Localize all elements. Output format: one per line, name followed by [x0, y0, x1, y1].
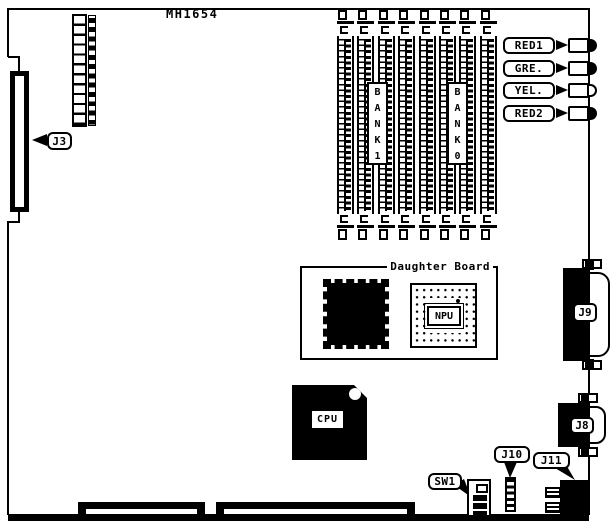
simm-slot — [398, 10, 415, 240]
simm-clip-bottom — [422, 215, 430, 223]
led-yellow — [568, 83, 589, 98]
pin1-dot — [456, 299, 460, 303]
sw1-position-on — [473, 495, 487, 501]
qfp-chip — [323, 279, 389, 349]
simm-bar-top — [337, 21, 354, 24]
simm-pin-ladder — [337, 36, 354, 214]
simm-tab-top — [358, 10, 367, 20]
led-yellow-label: YEL. — [503, 82, 555, 99]
j8-mount-post-bottom — [581, 446, 589, 455]
simm-pin-ladder — [398, 36, 415, 214]
j9-label: J9 — [573, 303, 597, 322]
simm-contacts-right — [346, 39, 351, 211]
simm-bar-top — [357, 21, 374, 24]
cpu-pin1-dot — [349, 388, 361, 400]
simm-tab-bottom — [399, 229, 408, 240]
bank1-label: B A N K 1 — [367, 82, 388, 165]
led-yellow-arrow — [556, 85, 568, 95]
simm-tab-top — [460, 10, 469, 20]
simm-contacts-right — [407, 39, 412, 211]
simm-clip-top — [462, 26, 470, 34]
simm-clip-bottom — [340, 215, 348, 223]
simm-clip-top — [401, 26, 409, 34]
j11-callout: J11 — [533, 452, 570, 469]
cpu-chip: CPU — [292, 385, 367, 460]
j3-callout: J3 — [47, 132, 72, 150]
simm-tab-bottom — [358, 229, 367, 240]
led-row: GRE. — [503, 60, 603, 77]
sw1-dip-switch — [467, 479, 491, 517]
simm-bar-top — [480, 21, 497, 24]
led-red2-cap — [588, 107, 597, 120]
led-green-arrow — [556, 63, 568, 73]
simm-bar-bottom — [480, 225, 497, 228]
pin-header-pins — [88, 15, 96, 126]
simm-bar-bottom — [337, 225, 354, 228]
j3-callout-arrow — [32, 134, 47, 146]
npu-label: NPU — [427, 306, 461, 326]
simm-slot — [480, 10, 497, 240]
j9-mount-post-top — [585, 260, 594, 270]
edge-connector-stripe — [224, 509, 407, 514]
led-yellow-cap — [588, 84, 597, 97]
simm-contacts-left — [400, 39, 407, 211]
part-number-label: MH1654 — [166, 7, 218, 21]
simm-contacts-right — [489, 39, 494, 211]
daughter-board: Daughter Board NPU — [300, 266, 498, 360]
led-green — [568, 61, 589, 76]
led-red1 — [568, 38, 589, 53]
simm-slot — [337, 10, 354, 240]
edge-connector-left — [78, 502, 205, 521]
j11-jack — [545, 502, 561, 513]
simm-tab-bottom — [379, 229, 388, 240]
simm-bar-bottom — [398, 225, 415, 228]
simm-clip-bottom — [360, 215, 368, 223]
simm-bar-top — [419, 21, 436, 24]
simm-tab-top — [338, 10, 347, 20]
edge-connector-right — [216, 502, 415, 521]
led-row: RED1 — [503, 37, 603, 54]
led-green-cap — [588, 62, 597, 75]
simm-pin-ladder — [480, 36, 497, 214]
simm-slot — [419, 10, 436, 240]
sw1-callout: SW1 — [428, 473, 462, 490]
motherboard-diagram: MH1654 J3 — [0, 0, 612, 527]
simm-bar-top — [439, 21, 456, 24]
simm-tab-top — [440, 10, 449, 20]
cpu-label: CPU — [312, 411, 343, 428]
simm-pin-ladder — [419, 36, 436, 214]
led-red1-label: RED1 — [503, 37, 555, 54]
led-row: RED2 — [503, 105, 603, 122]
j11-jack — [545, 487, 561, 498]
led-row: YEL. — [503, 82, 603, 99]
simm-bar-top — [398, 21, 415, 24]
simm-rack — [337, 10, 498, 240]
simm-contacts-left — [359, 39, 366, 211]
led-red2-arrow — [556, 108, 568, 118]
simm-clip-top — [340, 26, 348, 34]
simm-tab-bottom — [481, 229, 490, 240]
simm-tab-bottom — [338, 229, 347, 240]
simm-clip-top — [360, 26, 368, 34]
simm-tab-top — [399, 10, 408, 20]
simm-bar-bottom — [419, 225, 436, 228]
led-red1-arrow — [556, 40, 568, 50]
simm-clip-bottom — [381, 215, 389, 223]
simm-contacts-left — [339, 39, 346, 211]
j3-connector — [10, 71, 29, 212]
j10-callout-arrow — [504, 462, 517, 478]
j10-callout: J10 — [494, 446, 530, 463]
simm-clip-top — [442, 26, 450, 34]
j8-label: J8 — [570, 417, 594, 434]
simm-clip-bottom — [401, 215, 409, 223]
pin-header-sockets — [72, 14, 87, 127]
simm-contacts-left — [421, 39, 428, 211]
simm-bar-bottom — [459, 225, 476, 228]
simm-contacts-right — [468, 39, 473, 211]
bank0-label: B A N K 0 — [447, 82, 468, 165]
j9-mount-post-bottom — [585, 359, 594, 369]
simm-tab-bottom — [420, 229, 429, 240]
simm-tab-top — [481, 10, 490, 20]
simm-clip-top — [483, 26, 491, 34]
simm-clip-bottom — [483, 215, 491, 223]
simm-tab-top — [420, 10, 429, 20]
simm-clip-top — [381, 26, 389, 34]
simm-bar-top — [459, 21, 476, 24]
simm-clip-bottom — [462, 215, 470, 223]
j8-mount-post-top — [581, 394, 589, 403]
simm-tab-bottom — [440, 229, 449, 240]
sw1-position-off — [476, 484, 488, 493]
led-red1-cap — [588, 39, 597, 52]
sw1-position-on — [473, 511, 487, 517]
npu-socket: NPU — [410, 283, 477, 348]
simm-bar-bottom — [357, 225, 374, 228]
simm-tab-bottom — [460, 229, 469, 240]
simm-clip-bottom — [442, 215, 450, 223]
simm-contacts-left — [482, 39, 489, 211]
led-red2 — [568, 106, 589, 121]
led-green-label: GRE. — [503, 60, 555, 77]
edge-connector-stripe — [86, 509, 197, 514]
simm-bar-bottom — [439, 225, 456, 228]
simm-clip-top — [422, 26, 430, 34]
daughter-board-title: Daughter Board — [387, 260, 493, 273]
sw1-position-on — [473, 503, 487, 509]
j11-connector — [560, 480, 588, 518]
led-red2-label: RED2 — [503, 105, 555, 122]
simm-contacts-right — [428, 39, 433, 211]
simm-tab-top — [379, 10, 388, 20]
simm-bar-bottom — [378, 225, 395, 228]
j10-pin-header — [505, 477, 516, 512]
simm-bar-top — [378, 21, 395, 24]
